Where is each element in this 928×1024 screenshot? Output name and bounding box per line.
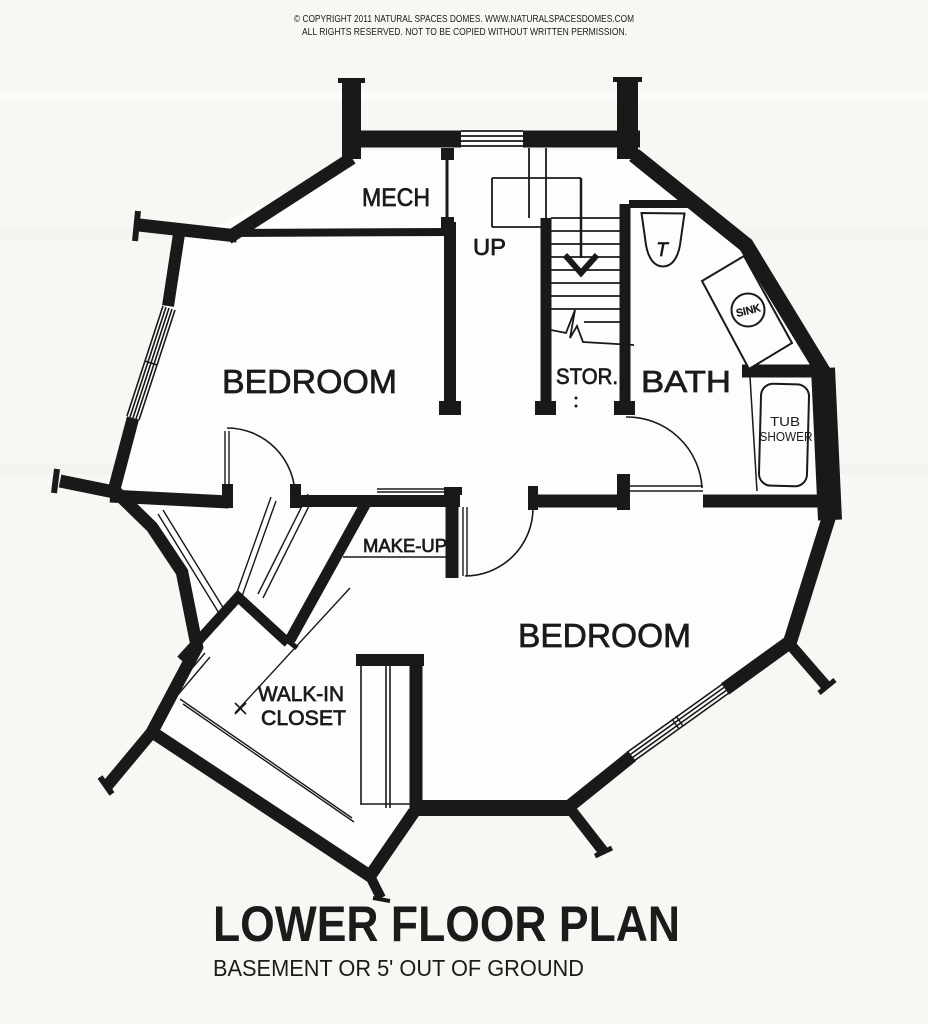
- svg-text:BEDROOM: BEDROOM: [222, 363, 397, 400]
- svg-text:CLOSET: CLOSET: [261, 707, 346, 730]
- svg-text:MECH: MECH: [362, 184, 430, 212]
- svg-text:MAKE-UP: MAKE-UP: [363, 536, 447, 556]
- svg-text:© COPYRIGHT 2011 NATURAL SPACE: © COPYRIGHT 2011 NATURAL SPACES DOMES. W…: [294, 14, 634, 25]
- svg-text:STOR.: STOR.: [556, 364, 618, 389]
- svg-text:WALK-IN: WALK-IN: [258, 683, 344, 706]
- svg-text:TUB: TUB: [770, 414, 800, 429]
- svg-text:T: T: [656, 240, 669, 261]
- svg-text:ALL RIGHTS RESERVED. NOT TO B: ALL RIGHTS RESERVED. NOT TO BE COPIED WI…: [302, 27, 627, 38]
- svg-text:UP: UP: [473, 234, 506, 260]
- svg-text:LOWER FLOOR PLAN: LOWER FLOOR PLAN: [213, 896, 680, 952]
- svg-text:SHOWER: SHOWER: [760, 429, 813, 444]
- svg-text:BATH: BATH: [641, 364, 731, 399]
- svg-text:BASEMENT OR 5' OUT OF GROUND: BASEMENT OR 5' OUT OF GROUND: [213, 955, 584, 981]
- svg-text:BEDROOM: BEDROOM: [518, 617, 691, 654]
